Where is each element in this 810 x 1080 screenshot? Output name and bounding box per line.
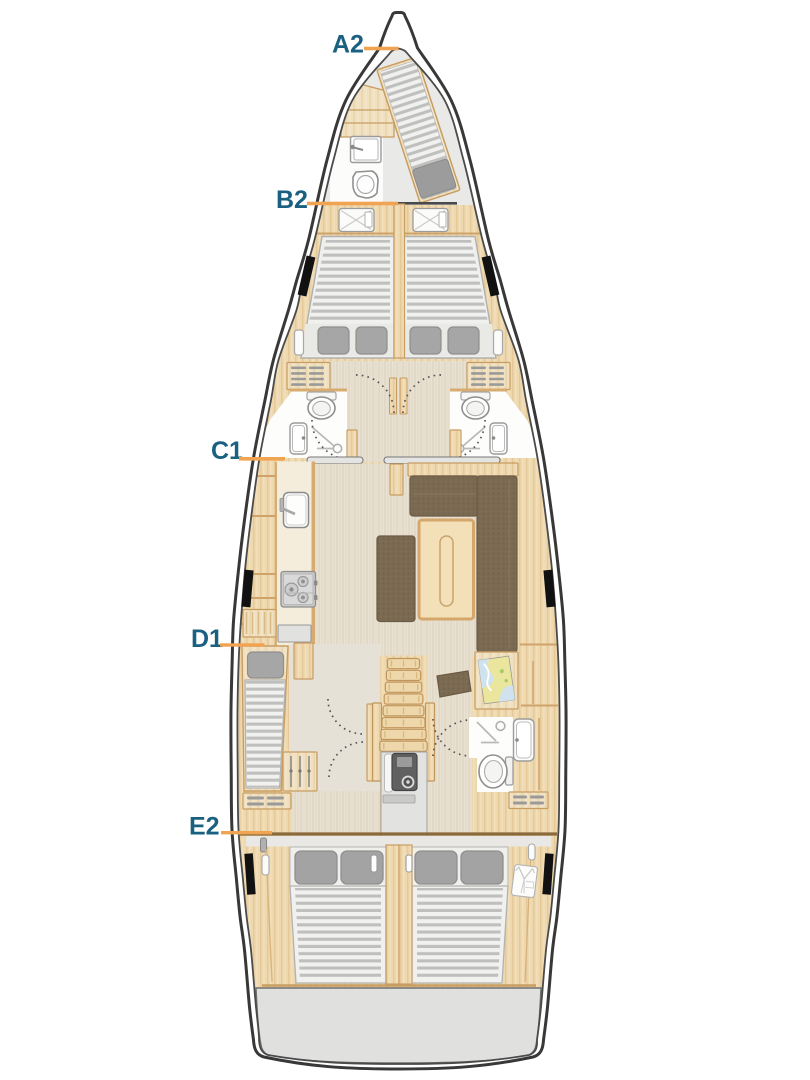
svg-text:C1: C1 bbox=[211, 437, 243, 465]
svg-text:B2: B2 bbox=[276, 186, 308, 214]
svg-text:D1: D1 bbox=[191, 625, 223, 653]
svg-text:A2: A2 bbox=[332, 31, 364, 59]
svg-text:E2: E2 bbox=[189, 813, 220, 841]
